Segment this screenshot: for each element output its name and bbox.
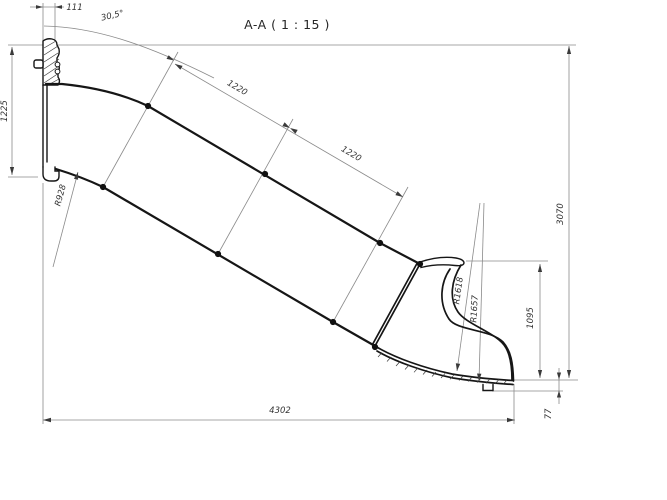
dim-exit-section-height-label: 1095: [526, 307, 536, 329]
angle-arc: [44, 26, 214, 78]
dim-overall-height-label: 3070: [556, 203, 566, 225]
dim-overall-length-label: 4302: [269, 406, 291, 416]
dim-segment2-label: 1220: [339, 144, 363, 164]
exit-foot-notch: [483, 385, 493, 391]
dimension-arrowheads: [10, 5, 571, 422]
dim-entry-height-label: 1225: [0, 100, 10, 122]
section-drawing: A-A ( 1 : 15 ) 111 30,5° 1225 R928 1220 …: [0, 0, 667, 500]
entry-rivet-bottom: [55, 69, 60, 74]
extension-and-dimension-lines: [8, 3, 578, 424]
joint-markers: [100, 103, 423, 350]
labels: A-A ( 1 : 15 ) 111 30,5° 1225 R928 1220 …: [0, 3, 566, 419]
joint-1-extension: [103, 52, 178, 187]
dim-1220-line: [175, 64, 403, 197]
chute-bottom-rail: [56, 169, 375, 346]
r1657-leader: [479, 203, 484, 381]
dim-entry-radius-label: R928: [53, 183, 69, 208]
slide-profile: [34, 39, 514, 391]
exit-joint-line-b: [373, 263, 418, 345]
joint-2-extension: [218, 119, 293, 254]
dim-foot-height-label: 77: [544, 408, 554, 419]
entry-clamp-tab: [34, 60, 43, 68]
view-title: A-A ( 1 : 15 ): [244, 17, 330, 32]
entry-rivet-top: [55, 62, 60, 67]
exit-joint-line-a: [375, 264, 420, 346]
cad-drawing-viewport: A-A ( 1 : 15 ) 111 30,5° 1225 R928 1220 …: [0, 0, 667, 500]
exit-lip: [420, 257, 464, 267]
dim-slope-angle-label: 30,5°: [100, 9, 125, 24]
dim-exit-radius-outer-label: R1657: [469, 294, 480, 323]
dim-platform-thickness-label: 111: [66, 3, 82, 13]
